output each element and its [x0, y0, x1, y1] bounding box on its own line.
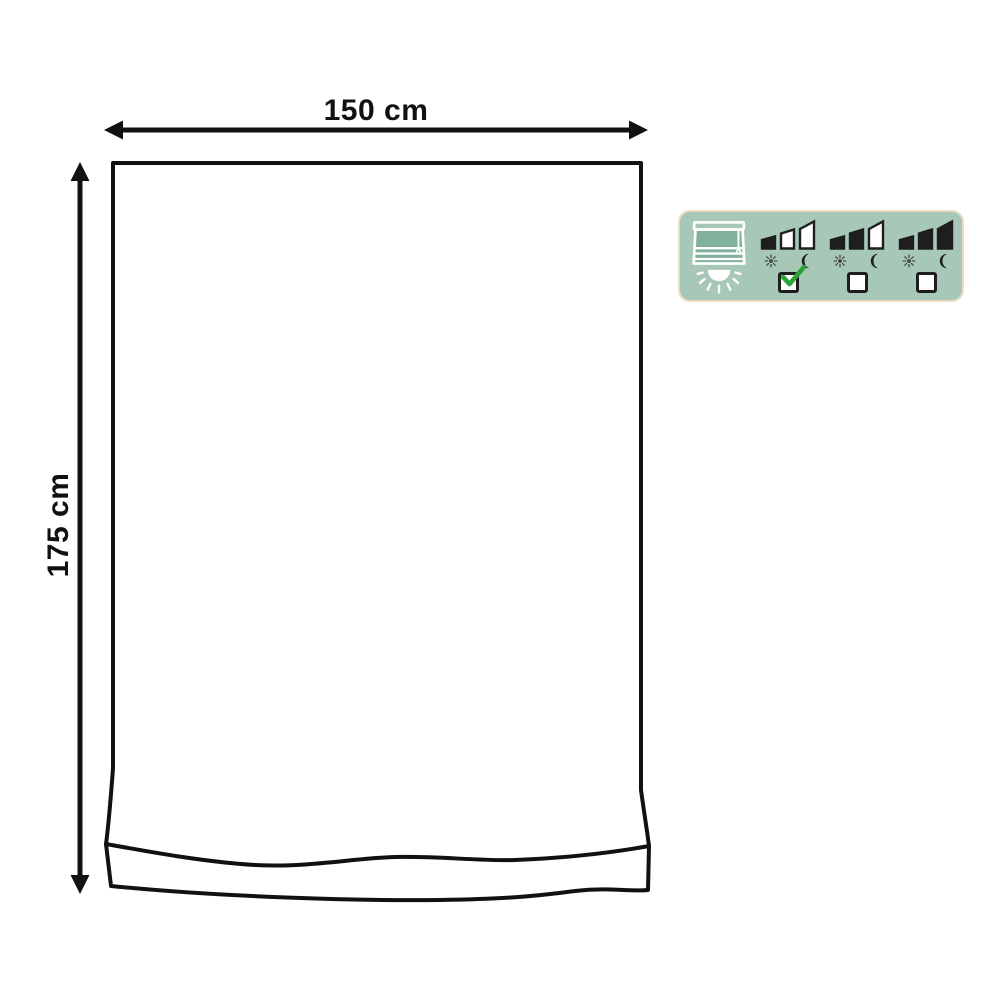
- light-filtering-badge: [678, 210, 964, 302]
- opacity-bars-icon: [899, 220, 953, 250]
- checkbox-checked: [778, 272, 799, 293]
- check-icon: [779, 263, 807, 289]
- height-dimension-label: 175 cm: [42, 473, 76, 578]
- opacity-option-3: [899, 220, 953, 293]
- width-dimension-label: 150 cm: [324, 94, 429, 128]
- curtain-diagram: [0, 0, 1000, 1000]
- width-arrowhead-left: [104, 121, 123, 140]
- opacity-bars-icon: [761, 220, 815, 250]
- moon-icon: [938, 253, 950, 269]
- checkbox-box: [847, 272, 868, 293]
- width-arrowhead-right: [629, 121, 648, 140]
- opacity-options: [761, 220, 953, 293]
- moon-icon: [869, 253, 881, 269]
- opacity-option-1: [761, 220, 815, 293]
- checkbox-box: [916, 272, 937, 293]
- roman-blind-light-icon: [690, 221, 748, 302]
- sun-icon: [764, 254, 778, 268]
- checkbox-unchecked: [916, 272, 937, 293]
- page: 150 cm 175 cm: [0, 0, 1000, 1000]
- curtain-outline: [106, 163, 649, 900]
- height-arrowhead-bottom: [71, 875, 90, 894]
- checkbox-unchecked: [847, 272, 868, 293]
- sun-icon: [902, 254, 916, 268]
- opacity-bars-icon: [830, 220, 884, 250]
- opacity-option-2: [830, 220, 884, 293]
- sun-icon: [833, 254, 847, 268]
- height-arrowhead-top: [71, 162, 90, 181]
